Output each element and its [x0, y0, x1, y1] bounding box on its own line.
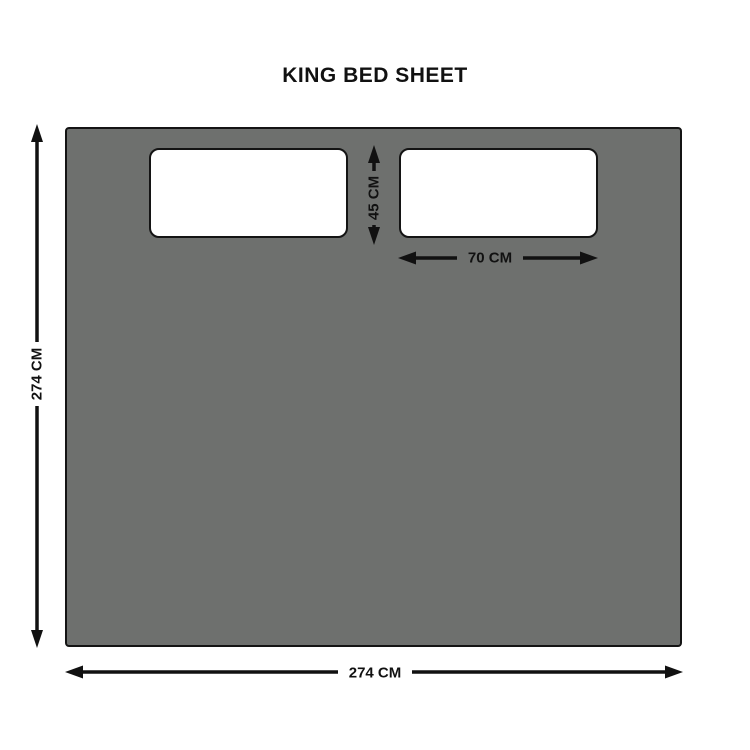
pillow-height-label: 45 CM — [366, 176, 383, 220]
pillow-cutout-left — [149, 148, 348, 238]
pillow-width-label: 70 CM — [468, 250, 512, 267]
pillow-cutout-right — [399, 148, 598, 238]
diagram-title: KING BED SHEET — [0, 64, 750, 88]
sheet-height-label: 274 CM — [29, 348, 46, 401]
sheet-width-label: 274 CM — [349, 665, 402, 682]
bed-sheet-dimension-diagram: KING BED SHEET — [0, 0, 750, 750]
